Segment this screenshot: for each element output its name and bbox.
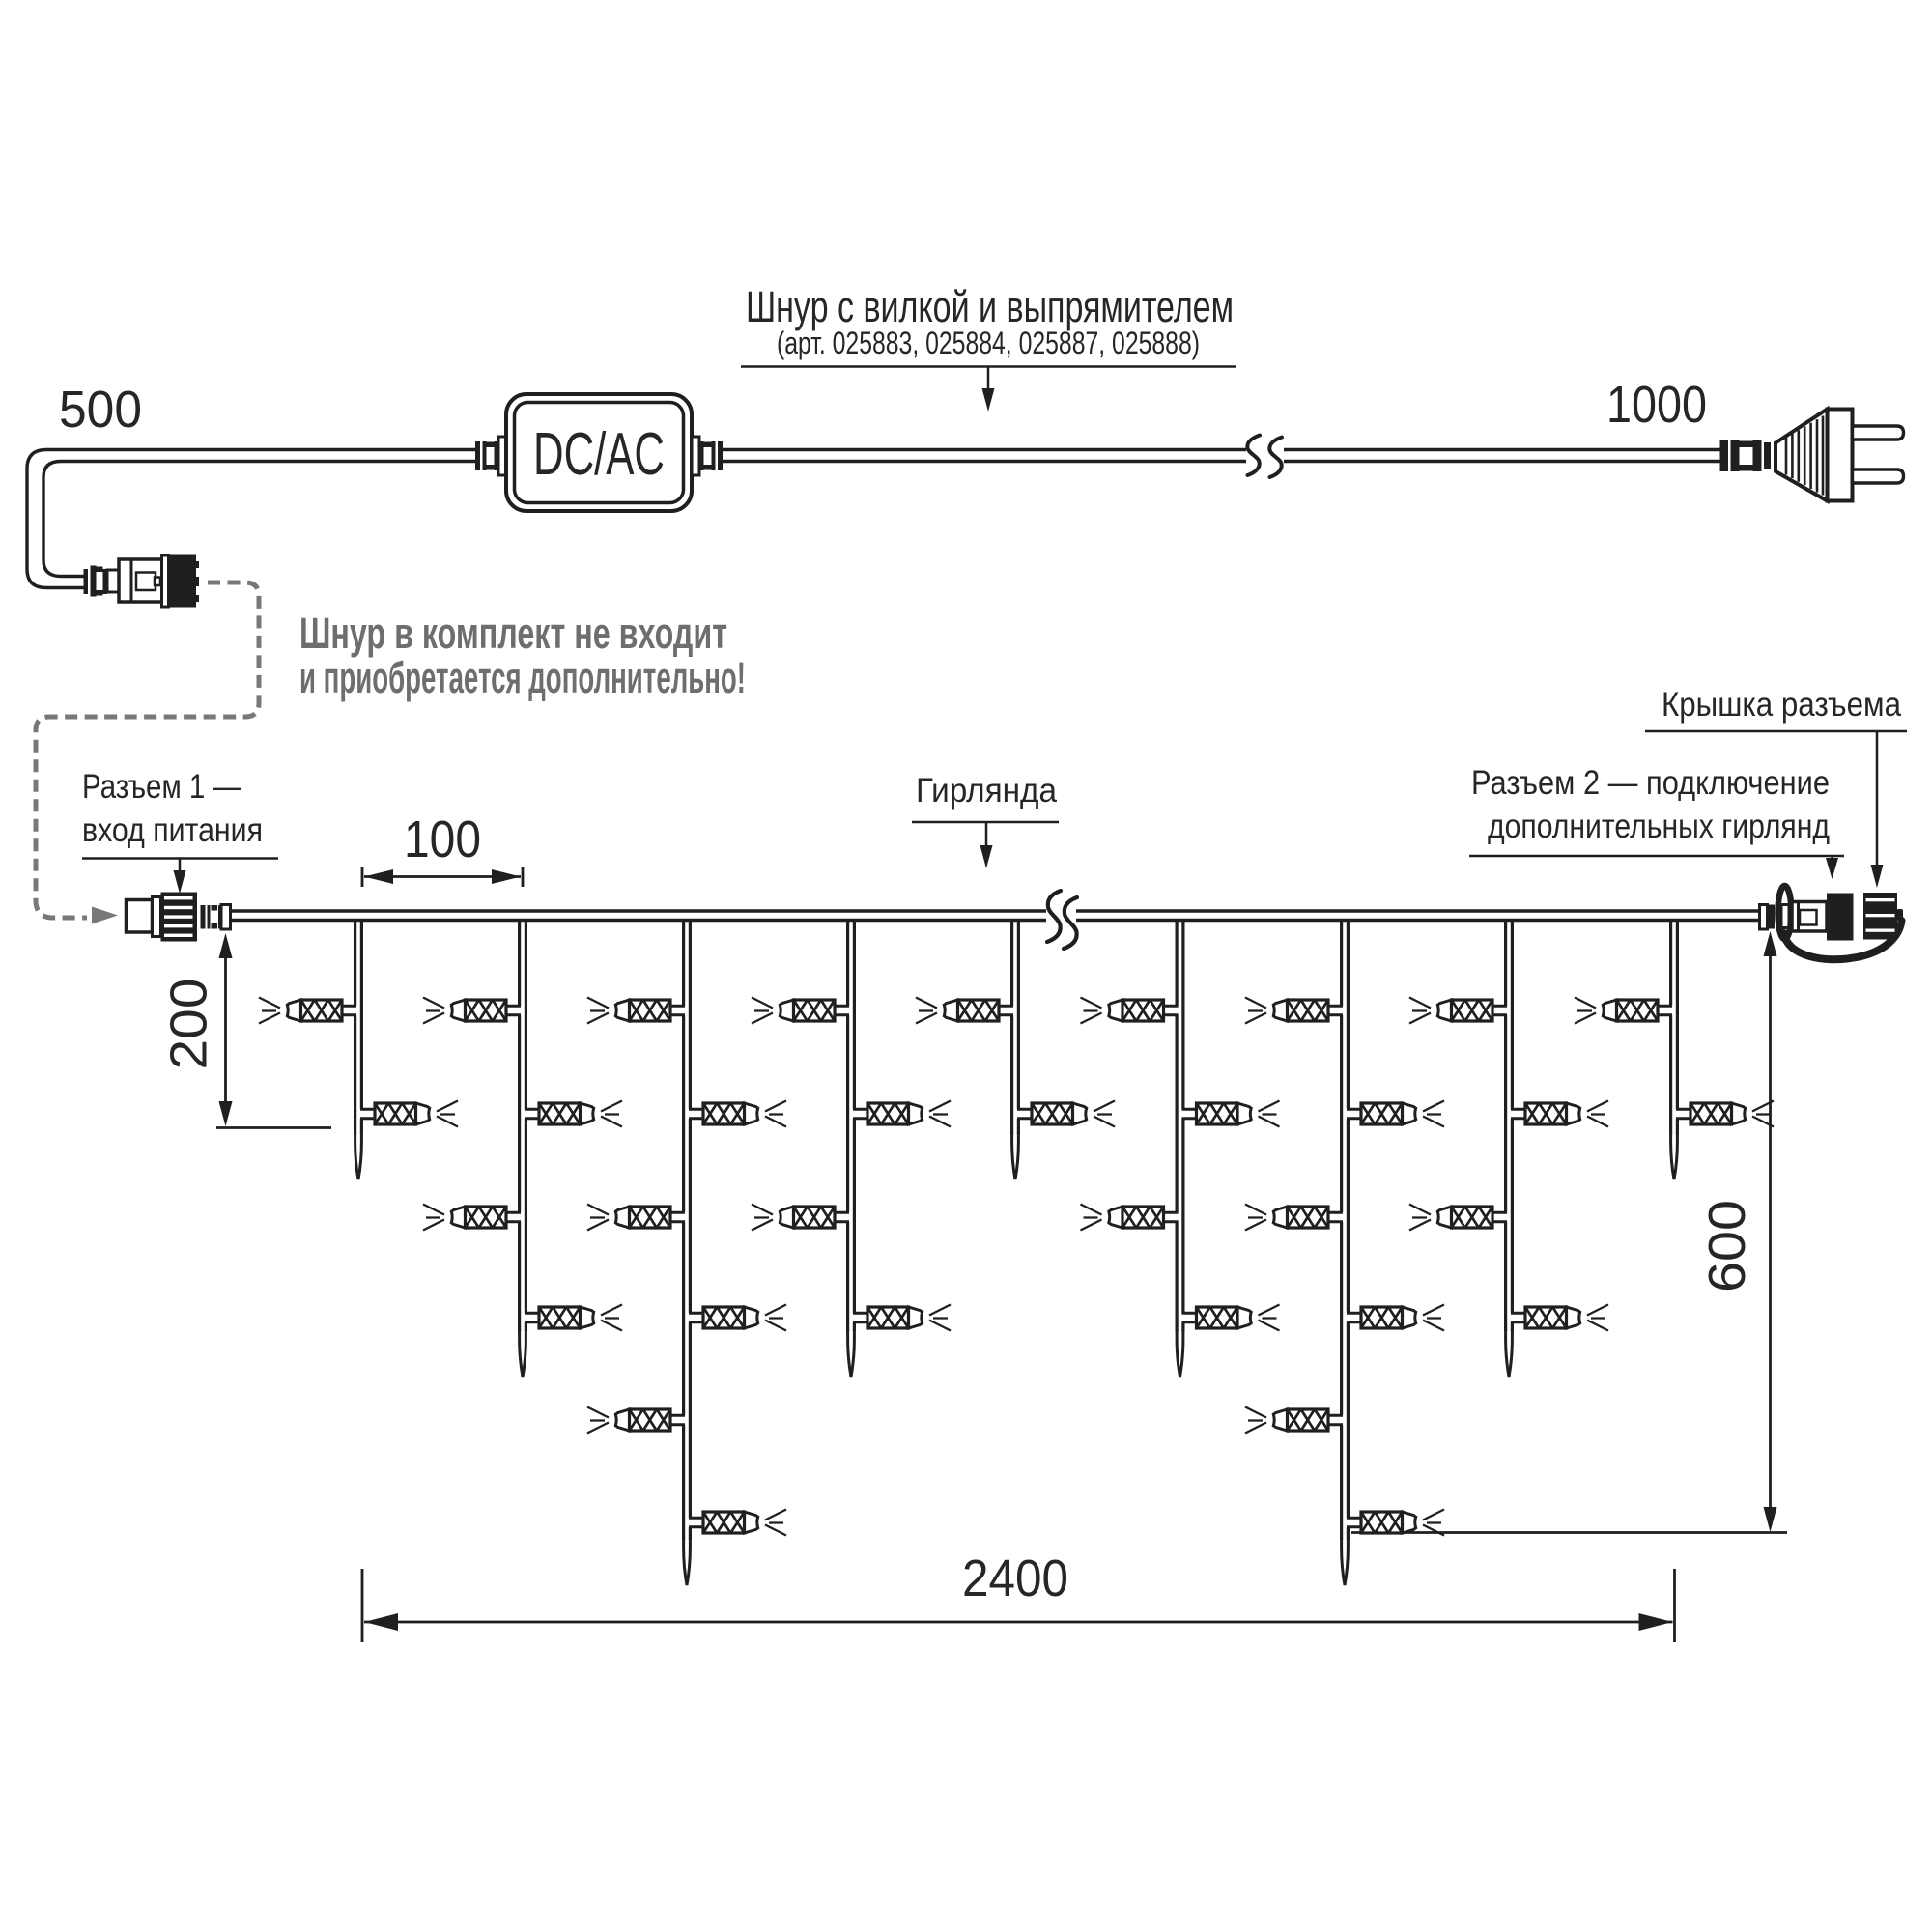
svg-text:(арт. 025883, 025884, 025887,: (арт. 025883, 025884, 025887, 025888): [777, 326, 1200, 360]
svg-text:дополнительных гирлянд: дополнительных гирлянд: [1488, 808, 1830, 845]
svg-text:100: 100: [404, 810, 481, 868]
svg-text:Шнур в комплект не входит: Шнур в комплект не входит: [299, 609, 727, 658]
svg-text:Крышка разъема: Крышка разъема: [1662, 686, 1901, 724]
svg-text:Разъем 2 — подключение: Разъем 2 — подключение: [1471, 764, 1830, 802]
svg-text:Разъем 1 —: Разъем 1 —: [82, 768, 241, 806]
svg-text:2400: 2400: [962, 1549, 1068, 1607]
svg-text:и приобретается дополнительно!: и приобретается дополнительно!: [299, 653, 746, 702]
svg-text:500: 500: [59, 381, 142, 439]
svg-text:200: 200: [160, 979, 218, 1070]
svg-text:вход питания: вход питания: [82, 811, 263, 849]
svg-text:600: 600: [1698, 1200, 1756, 1293]
svg-text:Шнур с вилкой и выпрямителем: Шнур с вилкой и выпрямителем: [746, 282, 1234, 331]
svg-text:DC/AC: DC/AC: [533, 421, 665, 488]
svg-text:Гирлянда: Гирлянда: [916, 772, 1058, 810]
svg-text:1000: 1000: [1606, 376, 1707, 434]
